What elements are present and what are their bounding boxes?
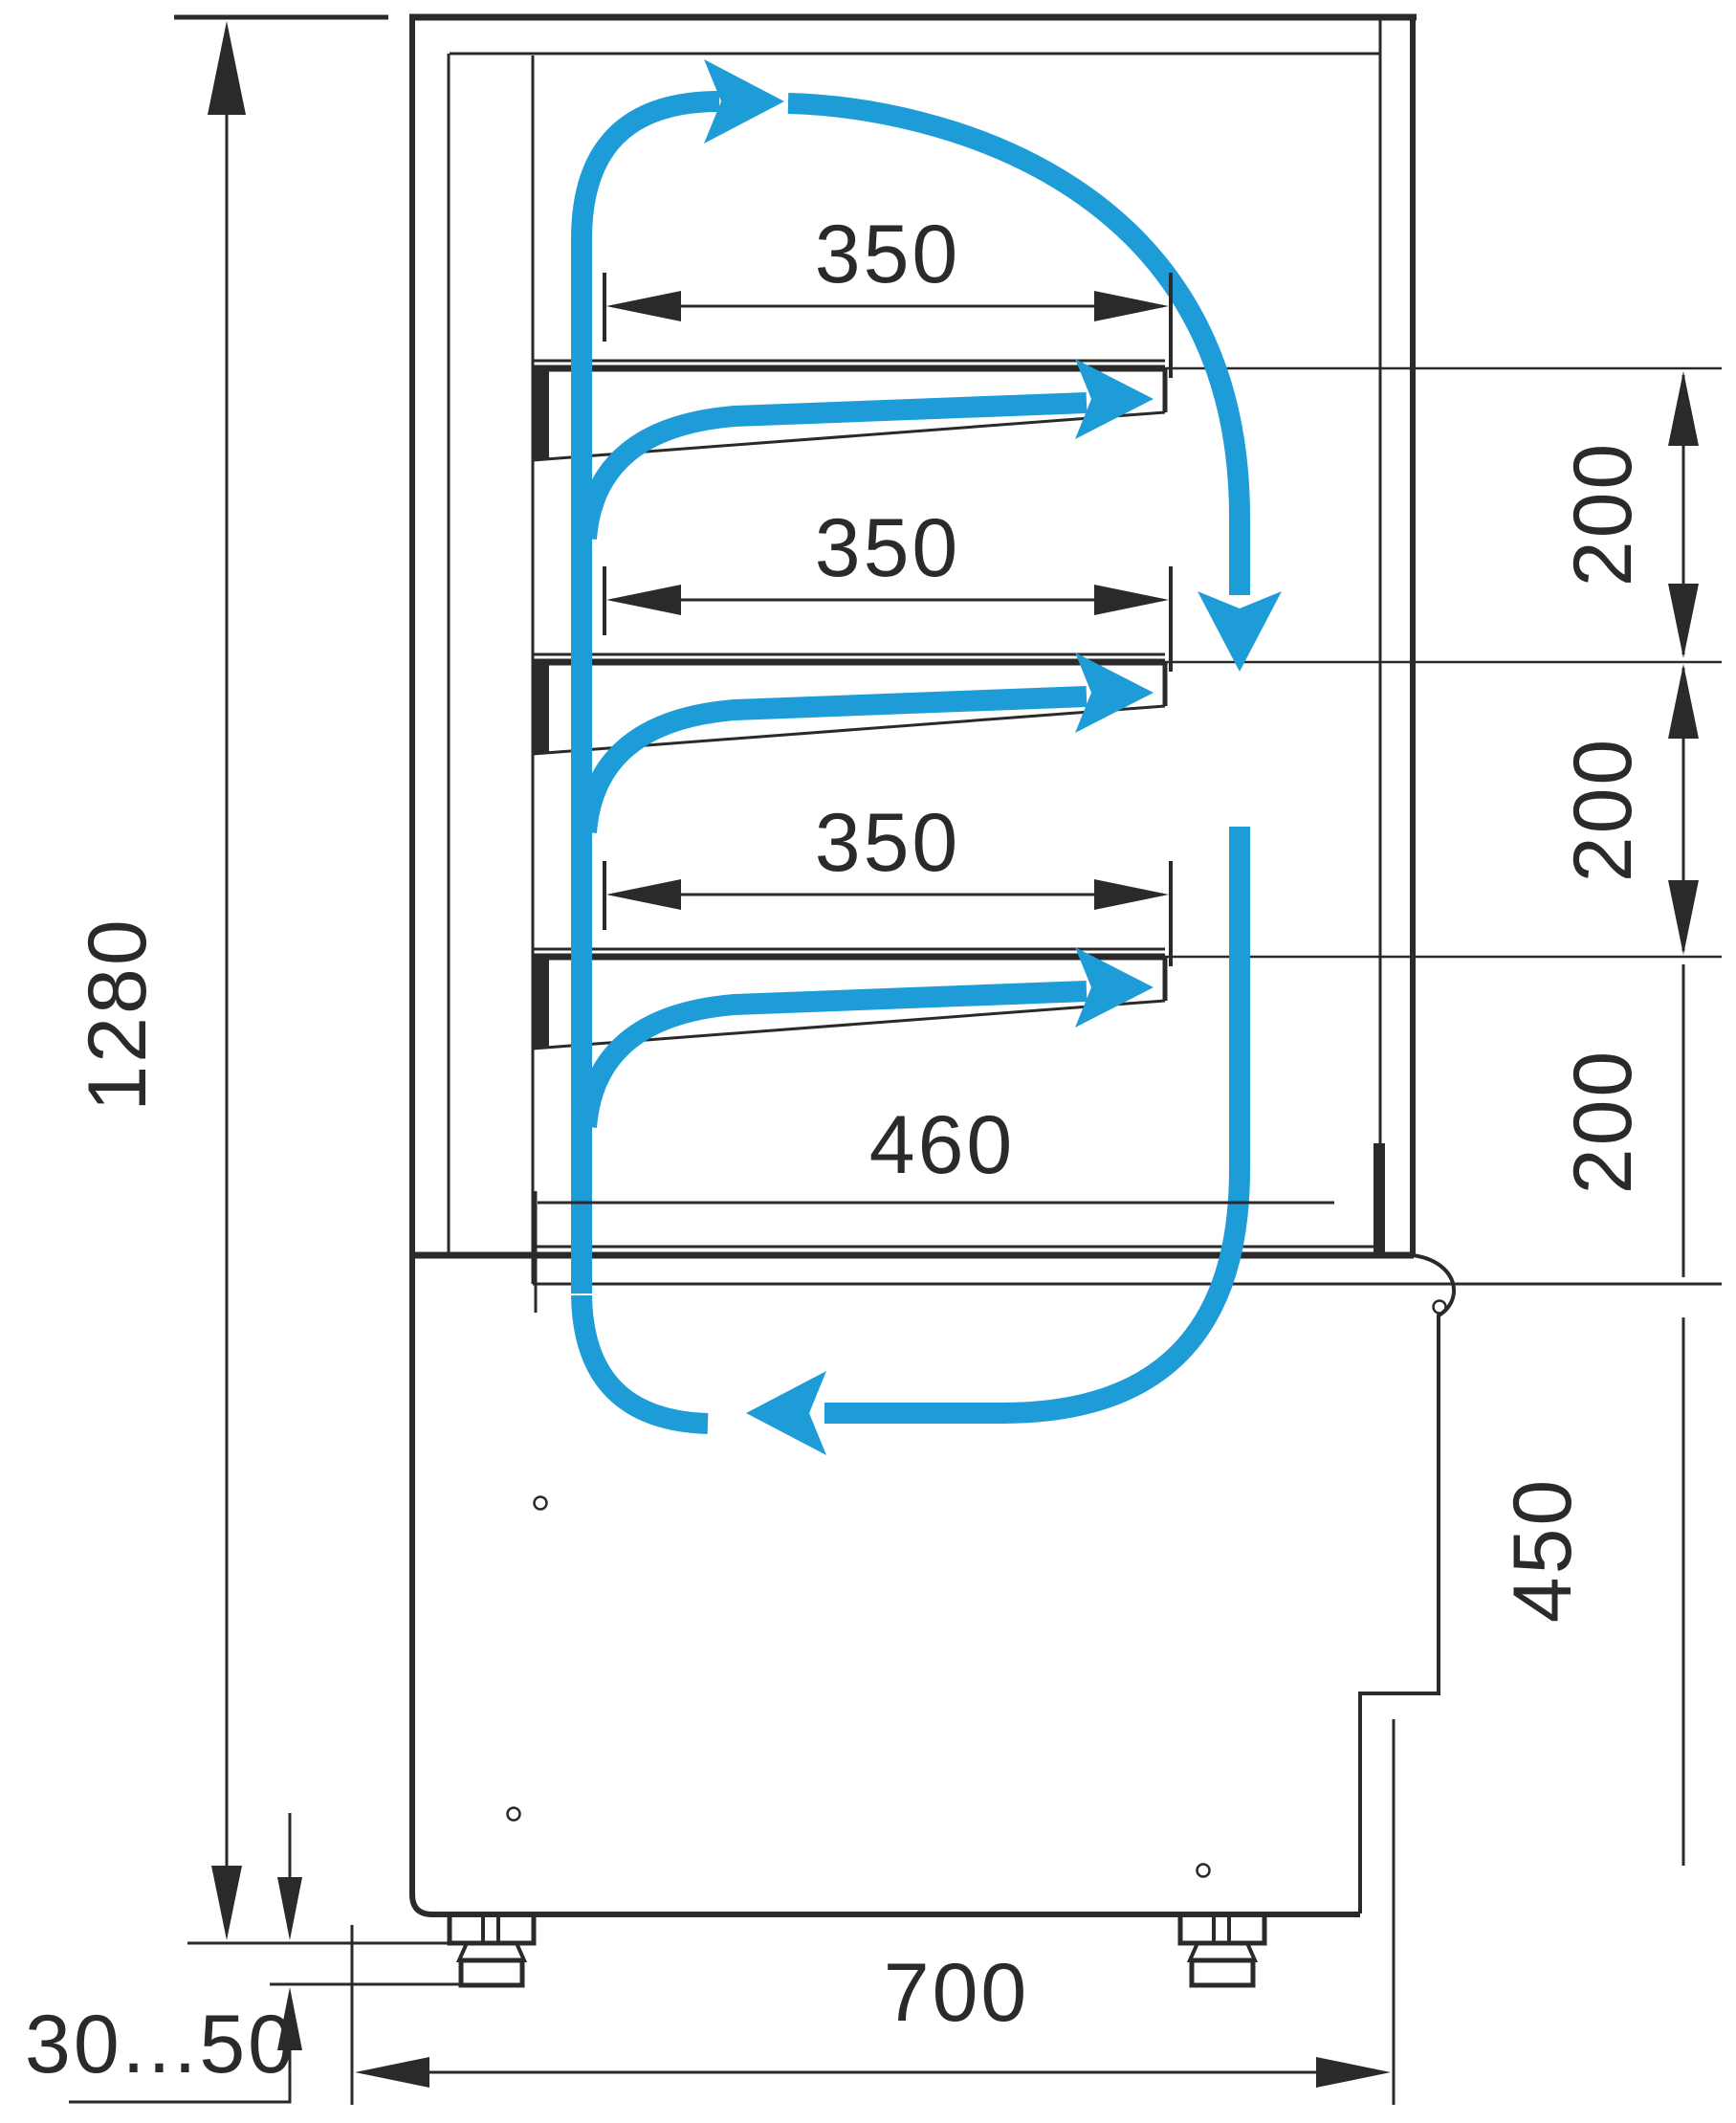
shelf-3-back-bracket (532, 959, 549, 1049)
shelf-2-back-bracket (532, 664, 549, 754)
dim-450-label: 450 (1497, 1477, 1589, 1624)
return-air-grille (1373, 1143, 1385, 1255)
dim-350-1-label: 350 (815, 209, 961, 300)
rear-foot-bracket (1180, 1914, 1264, 1943)
front-foot-pad (461, 1960, 522, 1985)
dimension-base-height-450: 450 (1497, 1317, 1683, 1866)
dimension-gap-1-200: 200 (1557, 371, 1699, 658)
dim-arrow-down-icon (1668, 584, 1699, 658)
dim-3050-label: 30...50 (25, 1999, 297, 2090)
front-adjustable-foot (450, 1914, 534, 1985)
dim-350-3-label: 350 (815, 797, 961, 889)
dim-arrow-up-icon (1668, 371, 1699, 446)
dim-arrow-down-icon (211, 1866, 242, 1940)
front-foot-bracket (450, 1914, 534, 1943)
dim-200-3-label: 200 (1557, 1049, 1649, 1195)
dimension-shelf-3-350: 350 (604, 797, 1171, 966)
air-down-front-arrowhead-icon (1198, 591, 1282, 672)
technical-drawing-page: 350 350 350 460 200 200 200 (0, 0, 1736, 2123)
dim-700-label: 700 (884, 1947, 1030, 2039)
rear-foot-bracket-slots (1214, 1914, 1229, 1943)
dim-arrow-right-icon (1094, 585, 1169, 615)
dim-350-2-label: 350 (815, 502, 961, 594)
screw-icon (535, 1497, 547, 1510)
dim-arrow-left-icon (606, 585, 681, 615)
rear-adjustable-foot (1180, 1914, 1264, 1985)
dim-200-2-label: 200 (1557, 737, 1649, 883)
rear-foot-pad (1192, 1960, 1253, 1985)
dimension-base-depth-700: 700 (352, 1925, 1391, 2105)
dim-1280-label: 1280 (72, 917, 164, 1111)
dimension-foot-range-30-50: 30...50 (25, 1813, 302, 2102)
dim-460-label: 460 (869, 1099, 1016, 1191)
front-foot-stem (459, 1943, 524, 1960)
base-front-profile (1360, 1255, 1454, 1913)
air-up-back-duct-arrow-icon (582, 101, 719, 1294)
dimension-overall-height-1280: 1280 (72, 17, 388, 1940)
screw-icon (1198, 1865, 1210, 1877)
dimension-shelf-1-350: 350 (604, 209, 1171, 378)
dim-arrow-right-icon (1094, 879, 1169, 910)
dim-arrow-right-icon (1316, 2057, 1391, 2088)
dim-arrow-right-icon (1094, 291, 1169, 321)
dim-arrow-left-icon (355, 2057, 429, 2088)
dim-arrow-up-icon (208, 21, 246, 115)
screw-icon (508, 1808, 520, 1821)
air-return-up-curve (582, 1295, 708, 1424)
dim-arrow-left-icon (606, 291, 681, 321)
dim-200-1-label: 200 (1557, 441, 1649, 587)
air-return-left-arrowhead-icon (746, 1371, 826, 1455)
dim-arrow-down-icon (1668, 880, 1699, 955)
dim-arrow-up-icon (1668, 664, 1699, 739)
dim-arrow-left-icon (606, 879, 681, 910)
display-case-section-diagram: 350 350 350 460 200 200 200 (0, 0, 1736, 2123)
rear-foot-stem (1190, 1943, 1255, 1960)
front-foot-bracket-slots (483, 1914, 498, 1943)
dimension-gap-3-200: 200 (1557, 964, 1683, 1277)
dimension-gap-2-200: 200 (1557, 664, 1699, 955)
shelf-1-back-bracket (532, 370, 549, 460)
dim-arrow-down-icon (277, 1877, 302, 1940)
dimension-shelf-2-350: 350 (604, 502, 1171, 672)
screw-icon (1434, 1301, 1446, 1314)
